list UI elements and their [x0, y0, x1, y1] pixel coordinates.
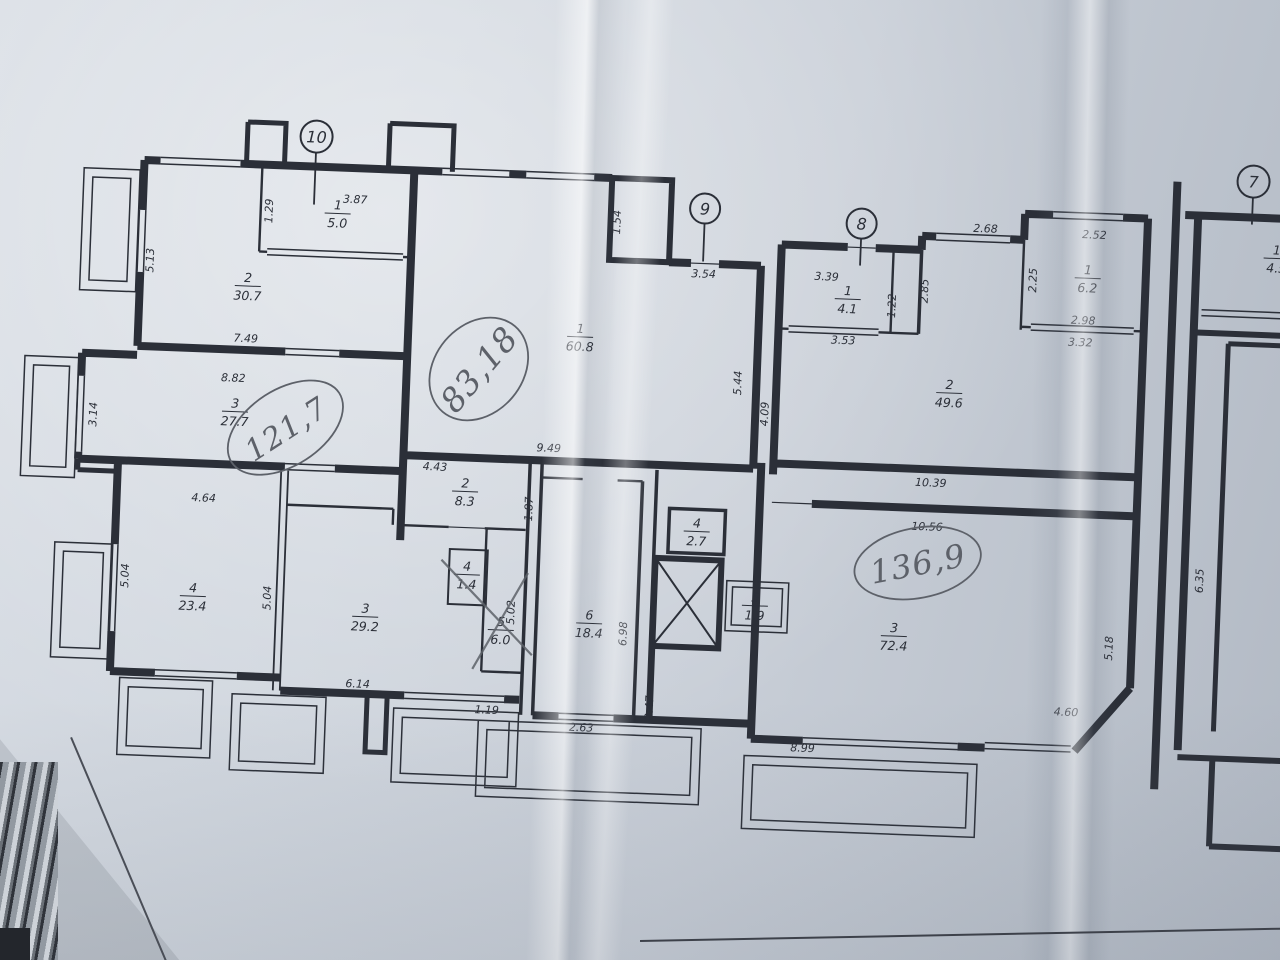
room-number: 3 — [231, 396, 240, 411]
dim-label: 1.87 — [522, 497, 536, 522]
handwritten-total-area: 136,9 — [867, 536, 969, 591]
dim-label: 2.85 — [918, 279, 932, 304]
door-openings — [449, 232, 876, 543]
room-area: 30.7 — [233, 288, 261, 304]
room-area: 72.4 — [879, 638, 907, 654]
corridor-walls — [521, 235, 922, 729]
dim-label: 3.53 — [831, 333, 856, 347]
room-number: 1 — [844, 283, 853, 298]
dim-label: 9.49 — [536, 441, 561, 455]
room-area: 2.7 — [686, 533, 706, 549]
apartment-number: 10 — [306, 127, 327, 147]
room-area: 29.2 — [351, 618, 379, 634]
room-area: 4.1 — [837, 301, 857, 317]
dim-label: 3.39 — [814, 270, 839, 284]
room-number: 4 — [189, 580, 198, 595]
room-number: 3 — [890, 620, 899, 635]
apartment-circle-numbers: 10 9 8 7 — [303, 127, 1260, 249]
dim-label: 2.98 — [1071, 314, 1096, 328]
dim-label: 3.32 — [1068, 336, 1093, 350]
dim-label: 4.09 — [758, 402, 772, 427]
room-number: 1 — [576, 321, 585, 336]
dim-label: 8.82 — [221, 371, 246, 385]
room-number: 5 — [751, 590, 760, 605]
dim-label: 6.98 — [616, 621, 630, 646]
dim-label: 1.22 — [885, 293, 899, 318]
handwritten-total-area: 121,7 — [239, 390, 334, 469]
room-number: 2 — [244, 270, 253, 285]
room-area: 8.3 — [454, 493, 474, 509]
radiator-shadow — [0, 928, 30, 960]
paper-shadow — [0, 700, 1280, 960]
room-area: 6.2 — [1077, 280, 1097, 296]
apartment-number: 9 — [700, 199, 711, 218]
apartment-number: 7 — [1248, 172, 1260, 191]
dim-label: 7.49 — [233, 332, 258, 346]
room-area: 4.5 — [1266, 260, 1280, 276]
dim-label: 5.44 — [731, 370, 745, 395]
room-number: 1 — [334, 197, 343, 212]
room-area: 49.6 — [935, 395, 963, 411]
thin-partition-double — [273, 470, 288, 690]
room-area: 60.8 — [566, 338, 594, 354]
dim-label: 4.43 — [423, 460, 448, 474]
elevator-x-icon — [652, 558, 721, 648]
room-number: 3 — [361, 601, 370, 616]
floor-plan-photo: 15.0 230.7 327.7 423.4 329.2 28.3 41.4 5… — [0, 0, 1280, 960]
room-number: 2 — [945, 377, 954, 392]
dim-label: 2.68 — [973, 222, 998, 236]
room-number: 1 — [1084, 262, 1093, 277]
dim-label: 6.35 — [1193, 568, 1207, 593]
dim-label: 1.29 — [262, 198, 276, 223]
dim-label: 3.14 — [86, 402, 100, 427]
dim-label: 2.52 — [1082, 228, 1107, 242]
dim-label: 3.54 — [691, 267, 716, 281]
room-label-fraction-lines — [179, 208, 1280, 660]
handwritten-total-area: 83,18 — [432, 319, 526, 420]
room-area: 1.9 — [744, 607, 764, 623]
dim-label: 5.18 — [1102, 636, 1116, 661]
dim-label: 2.25 — [1026, 268, 1040, 293]
room-area: 18.4 — [575, 625, 603, 641]
dim-label: 5.13 — [143, 248, 157, 273]
dim-label: 1.54 — [610, 210, 624, 235]
room-number: 4 — [463, 559, 472, 574]
room-area: 23.4 — [178, 598, 206, 614]
room-number: 6 — [585, 607, 594, 622]
room-area: 5.0 — [327, 215, 347, 231]
dim-label: 3.87 — [343, 193, 368, 207]
dim-label: 5.04 — [260, 586, 274, 611]
dim-label: 10.39 — [915, 476, 947, 490]
room-number: 1 — [1273, 242, 1280, 257]
apartment-number: 8 — [856, 214, 867, 233]
dim-label: 4.64 — [191, 491, 216, 505]
dim-label: 5.04 — [118, 563, 132, 588]
dim-label: 6.14 — [345, 677, 370, 691]
room-number: 4 — [693, 515, 702, 530]
room-number: 2 — [461, 475, 470, 490]
